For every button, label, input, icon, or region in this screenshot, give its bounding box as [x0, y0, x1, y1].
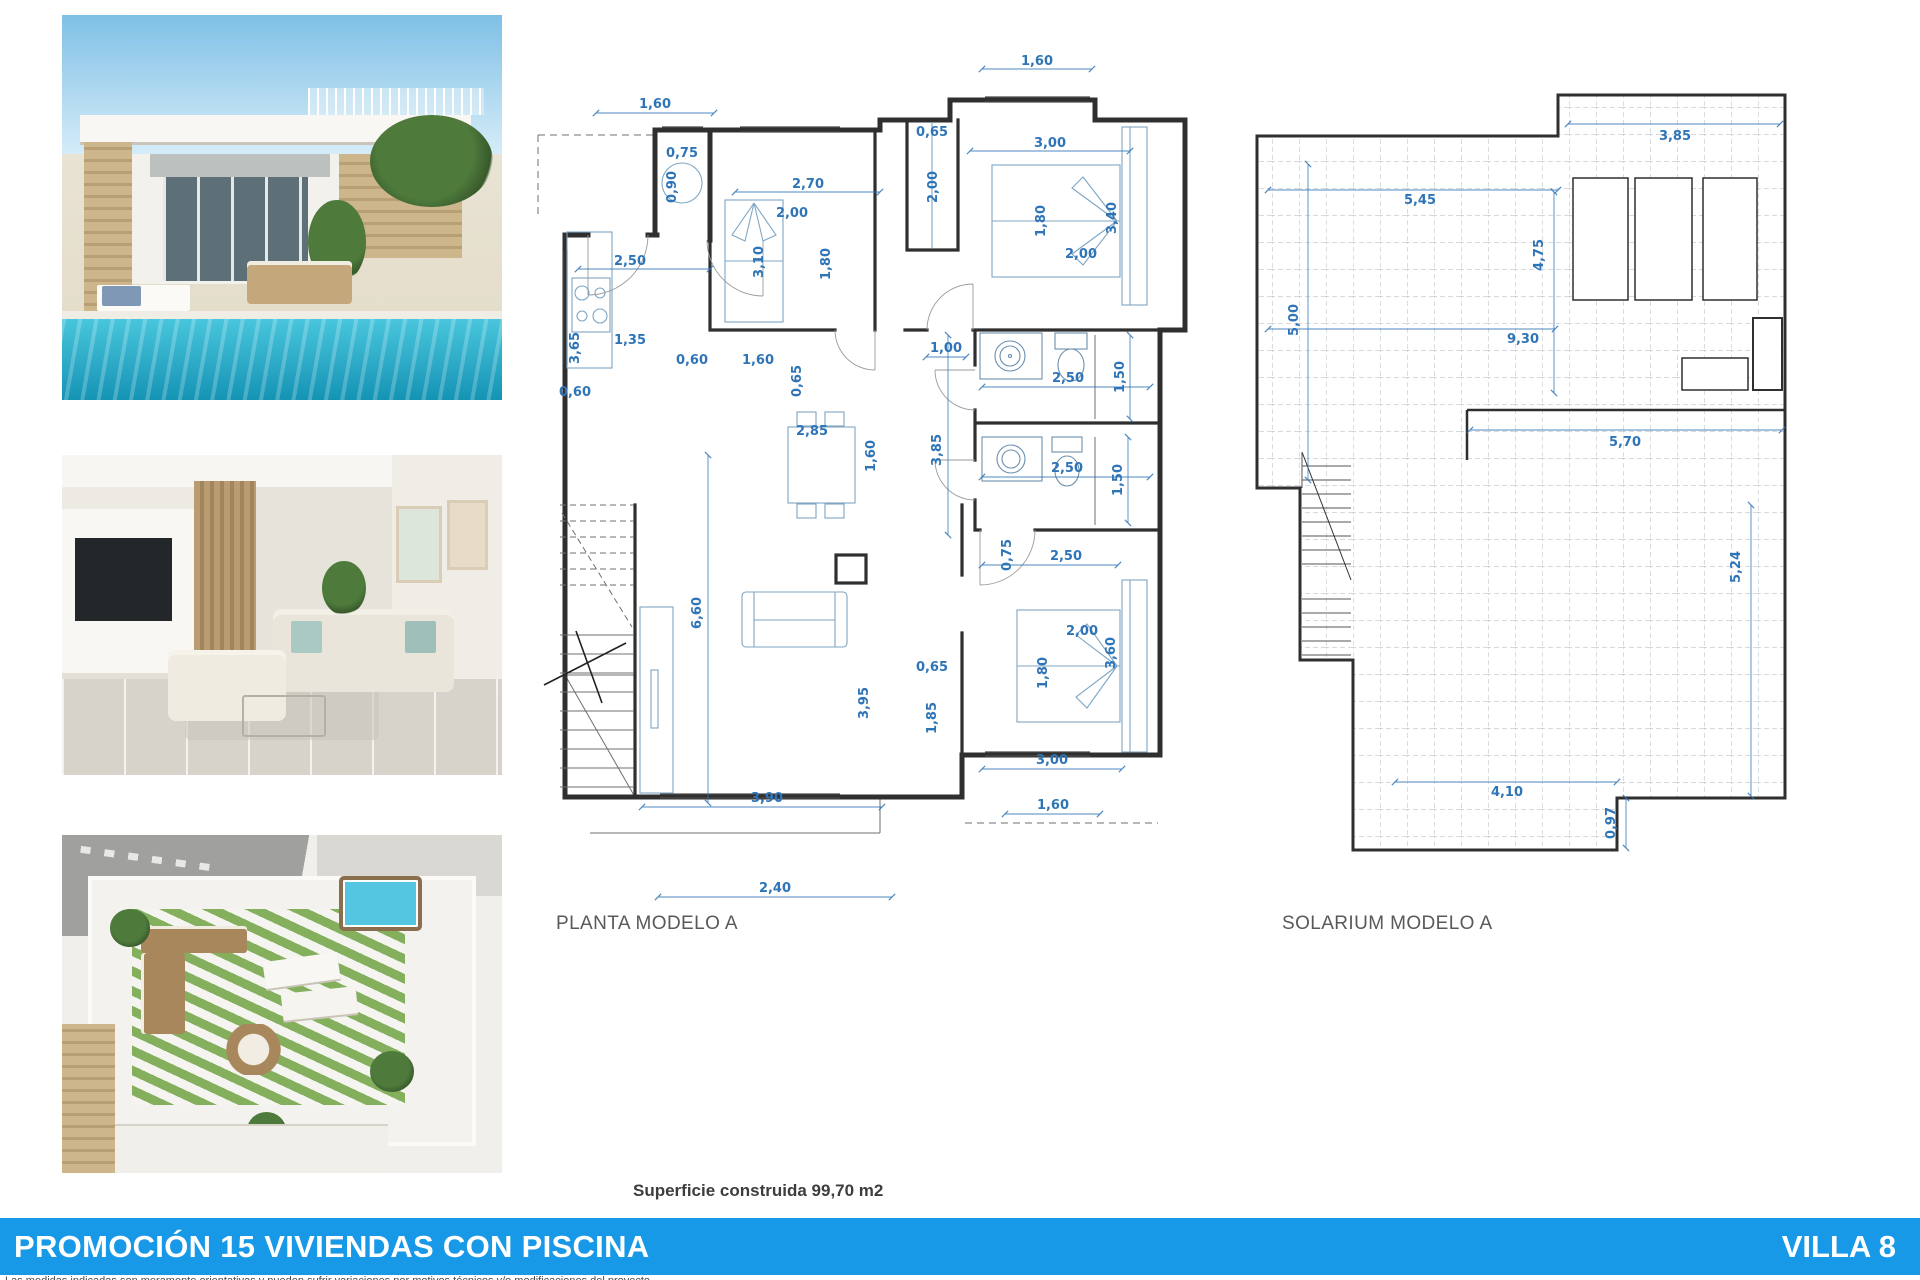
wall-pier [836, 555, 866, 583]
dimension-label: 3,00 [1034, 136, 1066, 151]
dimension-label: 3,95 [857, 687, 872, 719]
banner-villa-number: VILLA 8 [1782, 1229, 1920, 1265]
roof-plan-solarium: 3,855,454,755,009,305,705,244,100,97 [1245, 80, 1805, 880]
dimension-label: 1,50 [1113, 361, 1128, 393]
dimension-label: 2,00 [926, 171, 941, 203]
photo-rooftop-solarium [62, 835, 502, 1173]
awning-shadow [150, 154, 330, 177]
dimension-label: 0,65 [916, 125, 948, 140]
dimension-label: 1,80 [1034, 205, 1049, 237]
dimension-label: 0,75 [1000, 539, 1015, 571]
brochure-page: 1,600,750,901,600,652,002,702,003,101,80… [0, 0, 1920, 1280]
dimension-label: 2,00 [1066, 624, 1098, 639]
dimension-label: 2,00 [1065, 247, 1097, 262]
dimension-label: 0,65 [916, 660, 948, 675]
dimension-label: 3,85 [1659, 129, 1691, 144]
door-swings [588, 235, 1035, 585]
tv-screen [75, 538, 172, 621]
wood-slat-panel [194, 481, 256, 660]
dimension-label: 0,60 [559, 385, 591, 400]
tv-sideboard [640, 607, 673, 793]
dimension-label: 2,50 [1052, 371, 1084, 386]
coffee-table [242, 695, 325, 737]
round-rattan-chair [225, 1024, 282, 1075]
dimension-label: 1,60 [864, 440, 879, 472]
dimension-label: 3,40 [1105, 202, 1120, 234]
stone-pillar-corner [62, 1024, 115, 1173]
dimension-label: 5,70 [1609, 435, 1641, 450]
planta-label: PLANTA MODELO A [556, 913, 738, 935]
pool-edge [62, 311, 502, 319]
disclaimer-text: Las medidas indicadas son meramente orie… [5, 1275, 653, 1280]
dimension-label: 2,40 [759, 881, 791, 896]
dimension-label: 2,85 [796, 424, 828, 439]
rattan-sofa-left [141, 953, 185, 1034]
wall-frame-2 [447, 500, 488, 570]
dimension-label: 5,00 [1287, 304, 1302, 336]
dimension-label: 0,97 [1604, 807, 1619, 839]
dimension-label: 1,85 [925, 702, 940, 734]
side-table [1682, 358, 1748, 390]
dimension-label: 3,85 [930, 434, 945, 466]
bottom-banner: PROMOCIÓN 15 VIVIENDAS CON PISCINA VILLA… [0, 1218, 1920, 1275]
floor-plan-planta: 1,600,750,901,600,652,002,702,003,101,80… [530, 35, 1200, 905]
sofa-pillow-teal [291, 621, 322, 653]
dimension-label: 1,80 [1036, 657, 1051, 689]
dimension-label: 0,65 [790, 365, 805, 397]
dimension-label: 3,60 [1104, 637, 1119, 669]
palm-tree [370, 115, 493, 207]
wardrobe-top-right [1122, 127, 1147, 305]
bathroom-2 [982, 437, 1095, 525]
sofa [742, 592, 847, 647]
jacuzzi [339, 876, 422, 931]
dimension-label: 3,10 [752, 246, 767, 278]
bed-top-right [992, 165, 1120, 277]
dimension-label: 6,60 [690, 597, 705, 629]
photo-villa-exterior [62, 15, 502, 400]
lounger-cushion [102, 286, 142, 305]
terrace-plant-2 [370, 1051, 414, 1092]
dimension-label: 0,60 [676, 353, 708, 368]
rattan-sofa [247, 261, 353, 303]
dimension-label: 2,00 [776, 206, 808, 221]
dimension-label: 1,60 [1037, 798, 1069, 813]
dimension-label: 2,50 [1051, 461, 1083, 476]
bathroom-fixtures [980, 333, 1095, 525]
dimension-label: 3,90 [751, 791, 783, 806]
dimension-label: 1,60 [639, 97, 671, 112]
dimension-label: 1,35 [614, 333, 646, 348]
dimension-label: 5,24 [1729, 551, 1744, 583]
dimension-label: 4,10 [1491, 785, 1523, 800]
dimension-label: 3,65 [568, 332, 583, 364]
dimension-label: 5,45 [1404, 193, 1436, 208]
dimension-label: 1,60 [1021, 54, 1053, 69]
roof-terrace-rail [308, 88, 484, 115]
dimension-label: 0,75 [666, 146, 698, 161]
wall-frame-1 [396, 506, 442, 582]
dimension-label: 2,50 [614, 254, 646, 269]
photo-living-room [62, 455, 502, 775]
wardrobe-bottom-right [1122, 580, 1147, 752]
dimension-label: 0,90 [665, 171, 680, 203]
superficie-text: Superficie construida 99,70 m2 [633, 1181, 883, 1201]
staircase [544, 505, 634, 787]
pool-ripples [62, 319, 502, 400]
chimney-block [1753, 318, 1782, 390]
rattan-sofa-top [141, 926, 247, 953]
dimension-label: 4,75 [1532, 239, 1547, 271]
indoor-plant [322, 561, 366, 615]
dimension-label: 3,00 [1036, 753, 1068, 768]
terrace-plant-1 [110, 909, 150, 946]
dimension-label: 2,70 [792, 177, 824, 192]
dimension-label: 1,80 [819, 248, 834, 280]
dimension-label: 9,30 [1507, 332, 1539, 347]
lower-white-wall [115, 1126, 388, 1173]
dimension-label: 1,50 [1111, 464, 1126, 496]
dimension-label: 1,60 [742, 353, 774, 368]
dimension-label: 2,50 [1050, 549, 1082, 564]
dimension-label: 1,00 [930, 341, 962, 356]
banner-title: PROMOCIÓN 15 VIVIENDAS CON PISCINA [0, 1229, 649, 1265]
solarium-label: SOLARIUM MODELO A [1282, 913, 1493, 935]
sofa-pillow-teal-2 [405, 621, 436, 653]
